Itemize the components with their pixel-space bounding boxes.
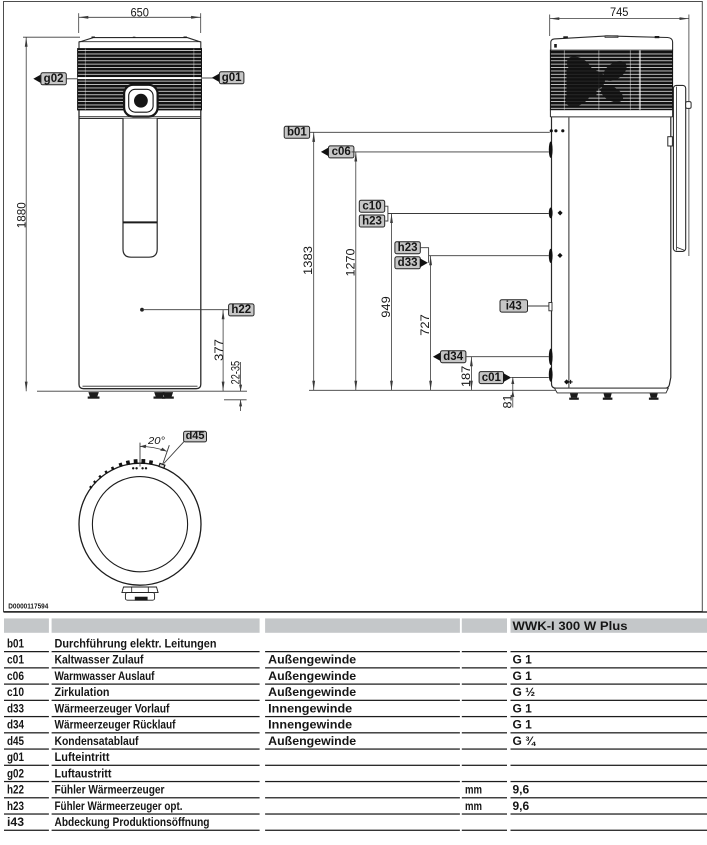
svg-text:Außengewinde: Außengewinde bbox=[268, 653, 356, 667]
svg-text:Außengewinde: Außengewinde bbox=[268, 734, 356, 748]
svg-text:Außengewinde: Außengewinde bbox=[268, 685, 356, 699]
svg-text:Abdeckung Produktionsöffnung: Abdeckung Produktionsöffnung bbox=[55, 815, 210, 829]
svg-text:d33: d33 bbox=[398, 257, 418, 269]
svg-text:20°: 20° bbox=[147, 435, 165, 447]
svg-text:Fühler Wärmeerzeuger opt.: Fühler Wärmeerzeuger opt. bbox=[55, 799, 183, 813]
svg-text:Wärmeerzeuger Rücklauf: Wärmeerzeuger Rücklauf bbox=[55, 718, 177, 732]
svg-text:d45: d45 bbox=[7, 734, 24, 748]
svg-text:Außengewinde: Außengewinde bbox=[268, 669, 356, 683]
svg-text:WWK-I 300 W Plus: WWK-I 300 W Plus bbox=[513, 619, 628, 633]
svg-text:c01: c01 bbox=[7, 653, 24, 667]
svg-text:G 1: G 1 bbox=[513, 718, 533, 732]
svg-text:G ½: G ½ bbox=[513, 685, 536, 699]
svg-text:i43: i43 bbox=[7, 815, 24, 829]
svg-text:Innengewinde: Innengewinde bbox=[268, 718, 352, 732]
svg-text:c10: c10 bbox=[362, 201, 381, 213]
svg-text:727: 727 bbox=[418, 314, 432, 336]
svg-text:d33: d33 bbox=[7, 701, 24, 715]
svg-text:187: 187 bbox=[459, 365, 473, 387]
svg-text:G 1: G 1 bbox=[513, 701, 533, 715]
svg-text:h23: h23 bbox=[398, 242, 418, 254]
svg-text:h22: h22 bbox=[231, 304, 251, 316]
svg-text:Lufteintritt: Lufteintritt bbox=[55, 750, 110, 764]
svg-text:745: 745 bbox=[610, 5, 629, 19]
svg-text:g02: g02 bbox=[44, 73, 64, 85]
svg-text:377: 377 bbox=[212, 339, 226, 361]
svg-text:G 1: G 1 bbox=[513, 669, 533, 683]
svg-text:949: 949 bbox=[379, 296, 393, 318]
svg-text:G ¾: G ¾ bbox=[513, 734, 537, 748]
svg-text:D0000117594: D0000117594 bbox=[8, 602, 48, 611]
svg-text:b01: b01 bbox=[287, 127, 307, 139]
svg-text:650: 650 bbox=[130, 5, 149, 19]
svg-text:mm: mm bbox=[465, 783, 482, 797]
svg-text:d34: d34 bbox=[7, 718, 24, 732]
svg-text:1383: 1383 bbox=[301, 246, 315, 275]
svg-text:Wärmeerzeuger Vorlauf: Wärmeerzeuger Vorlauf bbox=[55, 701, 171, 715]
svg-text:d45: d45 bbox=[186, 430, 205, 442]
svg-text:Luftaustritt: Luftaustritt bbox=[55, 766, 112, 780]
svg-text:c06: c06 bbox=[7, 669, 24, 683]
svg-text:h23: h23 bbox=[362, 215, 382, 227]
svg-text:c06: c06 bbox=[332, 146, 351, 158]
svg-text:Warmwasser Auslauf: Warmwasser Auslauf bbox=[55, 669, 156, 683]
svg-text:9,6: 9,6 bbox=[513, 783, 530, 797]
svg-text:Zirkulation: Zirkulation bbox=[55, 685, 110, 699]
svg-text:Innengewinde: Innengewinde bbox=[268, 701, 352, 715]
svg-text:G 1: G 1 bbox=[513, 653, 533, 667]
svg-text:mm: mm bbox=[465, 799, 482, 813]
svg-text:i43: i43 bbox=[506, 300, 522, 312]
svg-text:g01: g01 bbox=[7, 750, 24, 764]
svg-text:g02: g02 bbox=[7, 766, 24, 780]
svg-text:h22: h22 bbox=[7, 783, 24, 797]
svg-text:Kondensatablauf: Kondensatablauf bbox=[55, 734, 140, 748]
svg-text:c01: c01 bbox=[482, 372, 502, 384]
svg-text:h23: h23 bbox=[7, 799, 24, 813]
svg-text:Kaltwasser Zulauf: Kaltwasser Zulauf bbox=[55, 653, 145, 667]
svg-text:9,6: 9,6 bbox=[513, 799, 530, 813]
svg-text:d34: d34 bbox=[443, 351, 463, 363]
svg-text:1270: 1270 bbox=[343, 248, 357, 276]
svg-text:Fühler Wärmeerzeuger: Fühler Wärmeerzeuger bbox=[55, 783, 165, 797]
svg-text:81: 81 bbox=[500, 394, 514, 408]
svg-text:c10: c10 bbox=[7, 685, 24, 699]
svg-text:1880: 1880 bbox=[15, 202, 29, 228]
svg-text:b01: b01 bbox=[7, 636, 24, 650]
svg-text:Durchführung elektr. Leitungen: Durchführung elektr. Leitungen bbox=[55, 636, 217, 650]
svg-text:22-35: 22-35 bbox=[229, 361, 243, 385]
svg-text:g01: g01 bbox=[222, 72, 242, 84]
